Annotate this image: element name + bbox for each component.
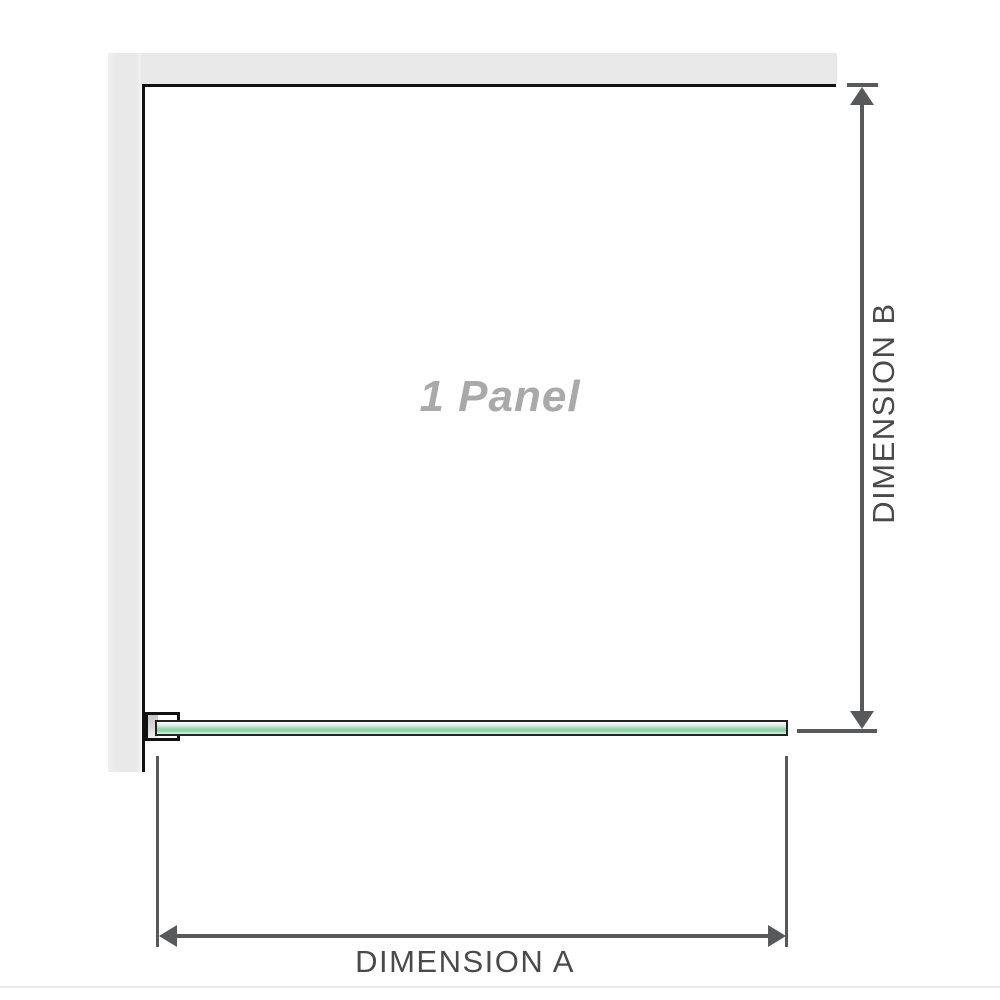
panel-top-outline bbox=[142, 84, 836, 87]
panel-left-outline bbox=[142, 84, 145, 772]
arrow-up-icon bbox=[850, 87, 874, 105]
dimension-b-tick-bottom bbox=[797, 729, 877, 733]
dimension-a-extension-left bbox=[156, 756, 159, 947]
panel-count-label: 1 Panel bbox=[350, 370, 650, 424]
dimension-a-extension-right bbox=[785, 756, 788, 947]
bottom-edge-line bbox=[0, 986, 1000, 988]
arrow-right-icon bbox=[768, 925, 786, 947]
diagram-canvas: 1 Panel DIMENSION B DIMENSION A bbox=[0, 0, 1000, 1000]
glass-panel bbox=[155, 720, 788, 736]
dimension-a-label: DIMENSION A bbox=[265, 944, 665, 980]
wall-top-band bbox=[108, 53, 837, 84]
wall-left-band bbox=[108, 53, 141, 772]
dimension-b-label: DIMENSION B bbox=[867, 263, 901, 563]
dimension-a-line bbox=[168, 934, 777, 938]
arrow-down-icon bbox=[850, 711, 874, 729]
dimension-b-line bbox=[860, 100, 864, 716]
arrow-left-icon bbox=[159, 925, 177, 947]
